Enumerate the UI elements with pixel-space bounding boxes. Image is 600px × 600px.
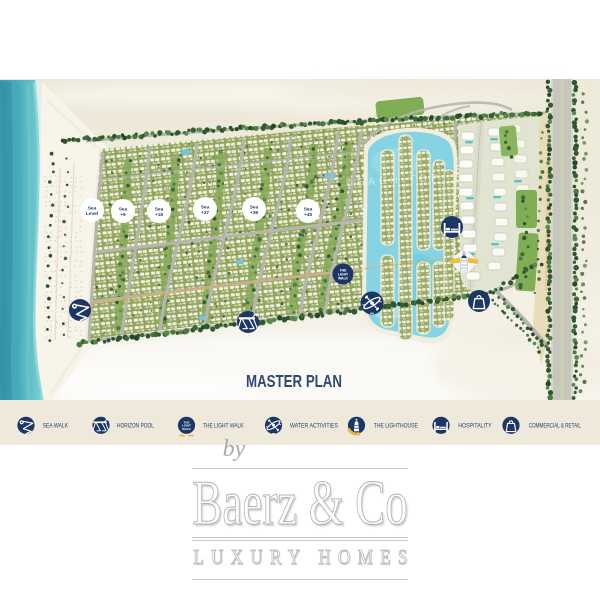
svg-text:Sea: Sea: [304, 207, 313, 213]
svg-text:COMMERCIAL & RETAIL: COMMERCIAL & RETAIL: [529, 423, 581, 430]
svg-text:Sea: Sea: [155, 207, 164, 213]
svg-text:Sea: Sea: [119, 207, 128, 213]
svg-text:THE LIGHTHOUSE: THE LIGHTHOUSE: [374, 423, 418, 430]
svg-text:WATER ACTIVITIES: WATER ACTIVITIES: [290, 423, 338, 430]
svg-text:Level: Level: [86, 211, 98, 217]
svg-text:+45: +45: [304, 212, 312, 218]
svg-text:+38: +38: [250, 210, 258, 216]
svg-text:+18: +18: [155, 212, 163, 218]
svg-text:THE LIGHT WALK: THE LIGHT WALK: [203, 423, 244, 430]
svg-text:Sea: Sea: [88, 206, 97, 212]
svg-text:HORIZON POOL: HORIZON POOL: [117, 423, 154, 430]
svg-text:MASTER PLAN: MASTER PLAN: [246, 371, 342, 391]
svg-text:HOSPITALITY: HOSPITALITY: [458, 423, 491, 430]
svg-text:+27: +27: [201, 210, 209, 216]
svg-text:Sea: Sea: [250, 205, 259, 211]
svg-text:+9: +9: [120, 212, 126, 218]
svg-text:SEA WALK: SEA WALK: [43, 423, 69, 430]
svg-text:WALK: WALK: [182, 427, 191, 431]
svg-text:Sea: Sea: [201, 205, 210, 211]
svg-text:WALK: WALK: [338, 277, 349, 281]
